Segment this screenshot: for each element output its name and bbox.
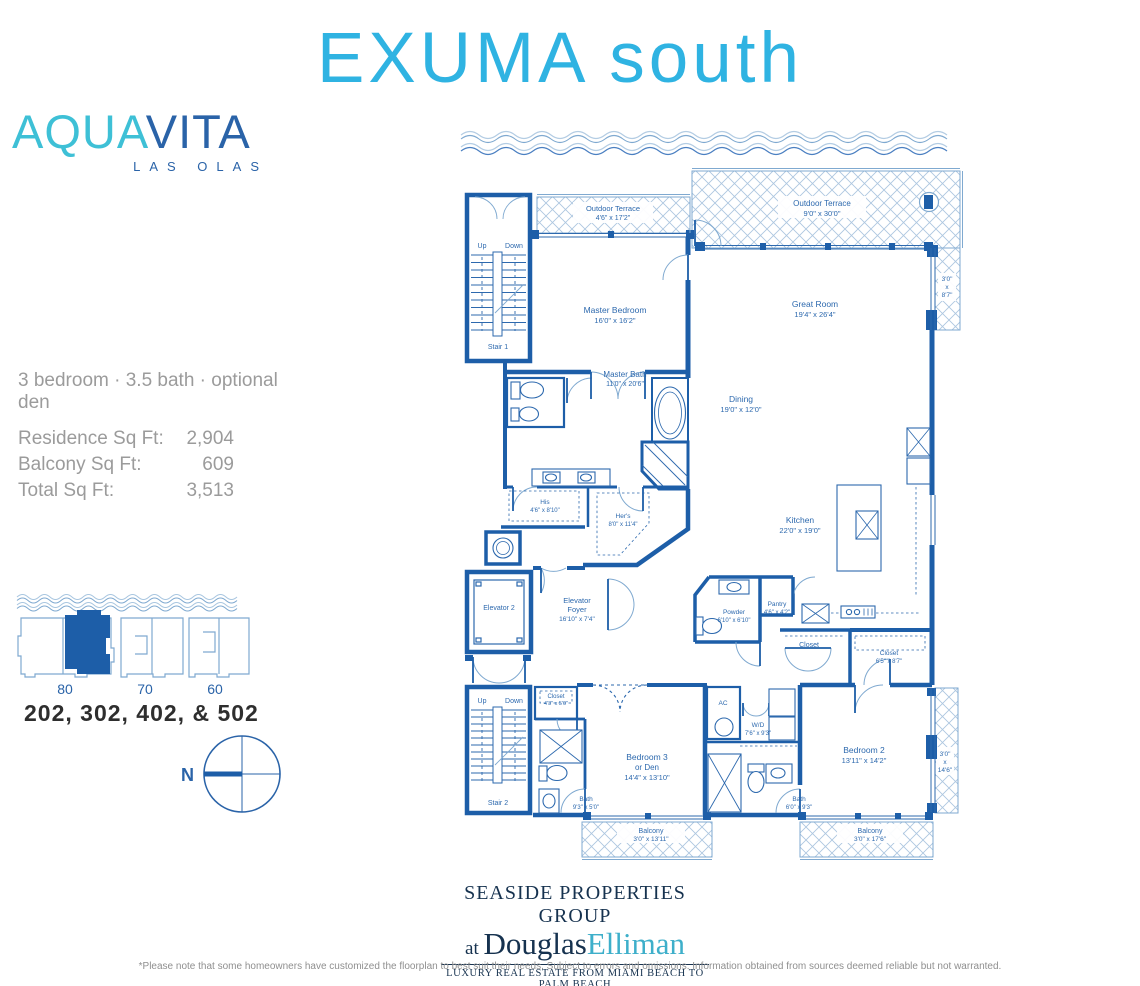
svg-text:4'6" x 17'2": 4'6" x 17'2" bbox=[596, 215, 631, 222]
room-label-bedroom3: Bedroom 3 or Den 14'4" x 13'10" bbox=[624, 752, 670, 782]
room-label-elevator-foyer: Elevator Foyer 16'10" x 7'4" bbox=[559, 596, 595, 623]
room-label-elevator2: Elevator 2 bbox=[483, 605, 515, 612]
bath3-sink-icon bbox=[539, 789, 559, 813]
room-label-kitchen: Kitchen 22'0" x 19'0" bbox=[779, 515, 820, 535]
aquavita-logo: AQUAVITA LAS OLAS bbox=[12, 108, 270, 174]
spec-label: Residence Sq Ft: bbox=[18, 426, 164, 452]
svg-text:Dining: Dining bbox=[729, 394, 753, 404]
svg-text:Bedroom 2: Bedroom 2 bbox=[843, 745, 885, 755]
residence-specs: 3 bedroom · 3.5 bath · optional den Resi… bbox=[18, 370, 280, 504]
water-heater-icon bbox=[715, 718, 733, 736]
cooktop-icon bbox=[841, 606, 875, 618]
room-label-master-bath: Master Bath 11'0" x 20'6" bbox=[603, 370, 646, 388]
svg-text:16'10" x 7'4": 16'10" x 7'4" bbox=[559, 616, 595, 623]
svg-text:6'5" x 8'7": 6'5" x 8'7" bbox=[876, 659, 902, 665]
svg-text:Balcony: Balcony bbox=[639, 828, 664, 835]
svg-text:Master Bath: Master Bath bbox=[603, 370, 646, 379]
water-waves-icon bbox=[17, 595, 237, 612]
svg-text:Pantry: Pantry bbox=[768, 601, 788, 608]
optional-den-doors bbox=[593, 685, 647, 712]
svg-text:Down: Down bbox=[505, 698, 523, 705]
svg-text:3'0": 3'0" bbox=[942, 276, 953, 283]
north-label: N bbox=[181, 765, 194, 785]
svg-text:Closet: Closet bbox=[880, 650, 899, 657]
logo-aqua: AQUA bbox=[12, 105, 146, 158]
svg-text:3'0" x 17'6": 3'0" x 17'6" bbox=[854, 836, 887, 843]
brokerage-name: SEASIDE PROPERTIES GROUP bbox=[430, 882, 720, 928]
svg-text:Bath: Bath bbox=[579, 796, 593, 803]
water-waves-icon bbox=[461, 132, 947, 155]
bath3-shower-icon bbox=[540, 730, 582, 763]
logo-vita: VITA bbox=[146, 105, 251, 158]
svg-text:19'0" x 12'0": 19'0" x 12'0" bbox=[720, 405, 761, 414]
bathtub-icon bbox=[655, 387, 686, 439]
building-label-70: 70 bbox=[137, 681, 153, 697]
spec-row-total: Total Sq Ft: 3,513 bbox=[18, 478, 234, 504]
svg-text:9'0" x 30'0": 9'0" x 30'0" bbox=[804, 209, 841, 218]
page-title: EXUMA south bbox=[280, 18, 840, 99]
room-label-dining: Dining 19'0" x 12'0" bbox=[720, 394, 761, 414]
spec-label: Balcony Sq Ft: bbox=[18, 452, 142, 478]
spec-label: Total Sq Ft: bbox=[18, 478, 114, 504]
bidet-icon bbox=[511, 407, 539, 421]
svg-text:Kitchen: Kitchen bbox=[786, 515, 815, 525]
counter-x-icon bbox=[802, 604, 829, 623]
svg-text:Stair 1: Stair 1 bbox=[488, 344, 508, 351]
room-label-bedroom2: Bedroom 2 13'11" x 14'2" bbox=[842, 745, 887, 765]
svg-text:His: His bbox=[540, 499, 550, 506]
kitchen-island bbox=[837, 485, 881, 571]
spec-value: 3,513 bbox=[186, 478, 234, 504]
room-label-bath3: Bath 9'3" x 5'0" bbox=[573, 796, 599, 811]
room-label-great-room: Great Room 19'4" x 26'4" bbox=[792, 299, 838, 319]
powder-sink-icon bbox=[719, 580, 749, 594]
room-label-closet-bedroom3: Closet 4'3" x 5'0" bbox=[544, 694, 568, 707]
building-locator-map: 80 70 60 bbox=[15, 588, 265, 700]
svg-text:Elevator: Elevator bbox=[563, 596, 591, 605]
svg-text:W/D: W/D bbox=[752, 722, 765, 729]
svg-text:4'3" x 5'0": 4'3" x 5'0" bbox=[544, 701, 568, 707]
room-label-balcony-right: Balcony 3'0" x 17'6" bbox=[854, 828, 887, 843]
svg-text:Closet: Closet bbox=[547, 694, 564, 700]
svg-text:7'6" x 9'3": 7'6" x 9'3" bbox=[745, 731, 771, 737]
room-label-wd: W/D 7'6" x 9'3" bbox=[745, 722, 771, 737]
svg-text:8'7": 8'7" bbox=[942, 292, 953, 299]
laundry-tub-icon bbox=[493, 538, 513, 558]
svg-text:Foyer: Foyer bbox=[567, 605, 587, 614]
refrigerator-icon bbox=[907, 428, 930, 484]
building-label-60: 60 bbox=[207, 681, 223, 697]
room-label-closet-center: Closet bbox=[799, 642, 819, 649]
svg-text:Great Room: Great Room bbox=[792, 299, 838, 309]
spec-value: 2,904 bbox=[186, 426, 234, 452]
floorplan-page: EXUMA south AQUAVITA LAS OLAS 3 bedroom … bbox=[0, 0, 1140, 986]
room-label-pantry: Pantry 4'6" x 4'2" bbox=[764, 601, 790, 616]
building-70-outline bbox=[121, 618, 183, 677]
room-label-powder: Powder 6'10" x 6'10" bbox=[718, 609, 751, 624]
svg-text:4'6" x 4'2": 4'6" x 4'2" bbox=[764, 610, 790, 616]
bed-bath-summary: 3 bedroom · 3.5 bath · optional den bbox=[18, 370, 280, 414]
room-label-his-closet: His 4'6" x 8'10" bbox=[530, 499, 560, 514]
svg-text:Outdoor Terrace: Outdoor Terrace bbox=[586, 204, 640, 213]
svg-text:13'11" x 14'2": 13'11" x 14'2" bbox=[842, 756, 887, 765]
svg-text:3'0": 3'0" bbox=[940, 751, 951, 758]
svg-text:Master Bedroom: Master Bedroom bbox=[584, 305, 647, 315]
svg-text:Outdoor Terrace: Outdoor Terrace bbox=[793, 199, 851, 208]
bath2-toilet-icon bbox=[748, 764, 764, 793]
svg-text:16'0" x 16'2": 16'0" x 16'2" bbox=[594, 316, 635, 325]
building-60-outline bbox=[189, 618, 249, 677]
svg-text:11'0" x 20'6": 11'0" x 20'6" bbox=[606, 381, 644, 388]
svg-text:Stair 2: Stair 2 bbox=[488, 800, 508, 807]
outdoor-areas bbox=[537, 169, 963, 860]
logo-subtitle: LAS OLAS bbox=[12, 159, 270, 174]
svg-text:14'6": 14'6" bbox=[938, 767, 953, 774]
svg-text:8'0" x 11'4": 8'0" x 11'4" bbox=[608, 522, 637, 528]
svg-text:19'4" x 26'4": 19'4" x 26'4" bbox=[794, 310, 835, 319]
room-label-closet-bedroom2: Closet 6'5" x 8'7" bbox=[876, 650, 902, 665]
toilet-icon bbox=[511, 382, 544, 399]
disclaimer-text: *Please note that some homeowners have c… bbox=[0, 961, 1140, 972]
svg-text:Her's: Her's bbox=[616, 513, 632, 520]
svg-text:4'6" x 8'10": 4'6" x 8'10" bbox=[530, 508, 560, 514]
svg-text:6'10" x 6'10": 6'10" x 6'10" bbox=[718, 618, 751, 624]
logo-wordmark: AQUAVITA bbox=[12, 108, 270, 155]
svg-text:Elevator 2: Elevator 2 bbox=[483, 605, 515, 612]
building-label-80: 80 bbox=[57, 681, 73, 697]
room-label-bath2: Bath 6'0" x 9'3" bbox=[786, 796, 812, 811]
svg-text:or Den: or Den bbox=[635, 763, 659, 772]
svg-text:6'0" x 9'3": 6'0" x 9'3" bbox=[786, 805, 812, 811]
svg-text:Closet: Closet bbox=[799, 642, 819, 649]
svg-text:3'0" x 13'11": 3'0" x 13'11" bbox=[633, 836, 669, 843]
bath2-sink-icon bbox=[766, 764, 792, 783]
room-label-master-bedroom: Master Bedroom 16'0" x 16'2" bbox=[584, 305, 647, 325]
room-label-hers-closet: Her's 8'0" x 11'4" bbox=[608, 513, 637, 528]
svg-text:14'4" x 13'10": 14'4" x 13'10" bbox=[624, 773, 670, 782]
svg-text:Powder: Powder bbox=[723, 609, 746, 616]
room-label-ac: AC bbox=[718, 700, 727, 707]
spec-value: 609 bbox=[202, 452, 234, 478]
compass-icon: N bbox=[175, 728, 310, 823]
svg-text:Bath: Bath bbox=[792, 796, 806, 803]
svg-text:Up: Up bbox=[478, 243, 487, 250]
spec-row-residence: Residence Sq Ft: 2,904 bbox=[18, 426, 234, 452]
unit-numbers-label: 202, 302, 402, & 502 bbox=[24, 700, 259, 727]
washer-dryer-icon bbox=[769, 689, 795, 740]
svg-text:AC: AC bbox=[718, 700, 727, 707]
double-vanity-icon bbox=[532, 469, 610, 486]
bath2-shower-icon bbox=[708, 754, 741, 812]
svg-text:Balcony: Balcony bbox=[858, 828, 883, 835]
svg-text:Down: Down bbox=[505, 243, 523, 250]
svg-text:Up: Up bbox=[478, 698, 487, 705]
highlighted-unit bbox=[65, 610, 110, 674]
svg-text:9'3" x 5'0": 9'3" x 5'0" bbox=[573, 805, 599, 811]
floorplan-drawing: Outdoor Terrace 4'6" x 17'2" Outdoor Ter… bbox=[455, 125, 965, 875]
douglas-elliman-logo: at DouglasElliman bbox=[430, 928, 720, 961]
bath3-toilet-icon bbox=[539, 766, 567, 782]
spec-row-balcony: Balcony Sq Ft: 609 bbox=[18, 452, 234, 478]
svg-text:22'0" x 19'0": 22'0" x 19'0" bbox=[779, 526, 820, 535]
svg-text:Bedroom 3: Bedroom 3 bbox=[626, 752, 668, 762]
